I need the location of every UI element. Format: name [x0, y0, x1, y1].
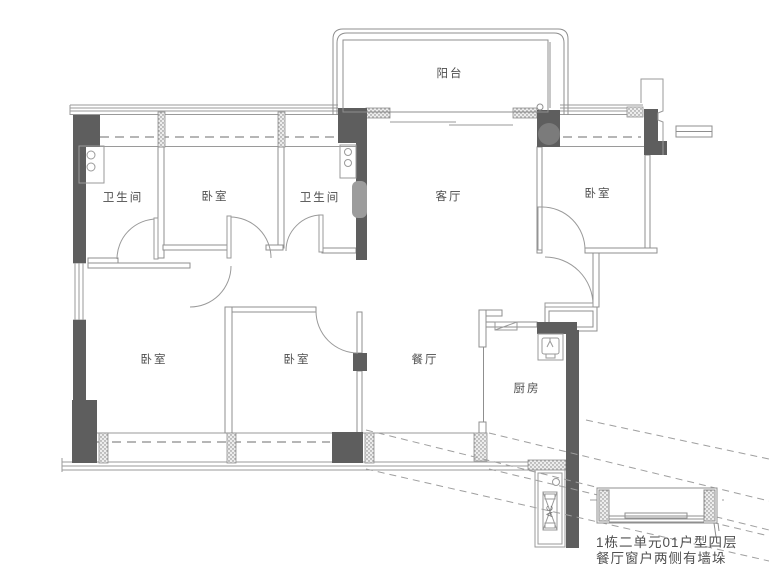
caption-line-2: 餐厅窗户两侧有墙垛	[596, 547, 727, 564]
room-label-kitchen: 厨房	[514, 380, 541, 396]
fixtures	[79, 145, 565, 547]
room-label-bedroom-bottom-middle: 卧室	[284, 351, 311, 367]
room-label-dining-room: 餐厅	[412, 351, 439, 367]
window-detail-drawing	[597, 488, 719, 537]
interior-walls	[88, 126, 712, 433]
room-label-bedroom-bottom-left: 卧室	[141, 351, 168, 367]
ac-unit-label: AC	[546, 505, 555, 517]
room-label-bathroom-middle: 卫生间	[300, 189, 341, 205]
room-label-bathroom-left: 卫生间	[103, 189, 144, 205]
room-label-balcony: 阳台	[437, 65, 464, 81]
column-corner-detail	[538, 123, 560, 145]
room-label-living-room: 客厅	[436, 188, 463, 204]
window-bands	[62, 105, 645, 472]
bay-window-dashed-lines	[97, 137, 641, 442]
doors	[117, 207, 593, 353]
hatched-wall-sections	[99, 107, 643, 470]
floor-plan-page: 阳台 卫生间 卧室 卫生间 客厅 卧室 卧室 卧室 餐厅 厨房 AC 1栋二单元…	[0, 0, 769, 564]
room-label-bedroom-right: 卧室	[585, 185, 612, 201]
floor-plan-drawing	[0, 0, 769, 564]
room-label-bedroom-top: 卧室	[202, 188, 229, 204]
